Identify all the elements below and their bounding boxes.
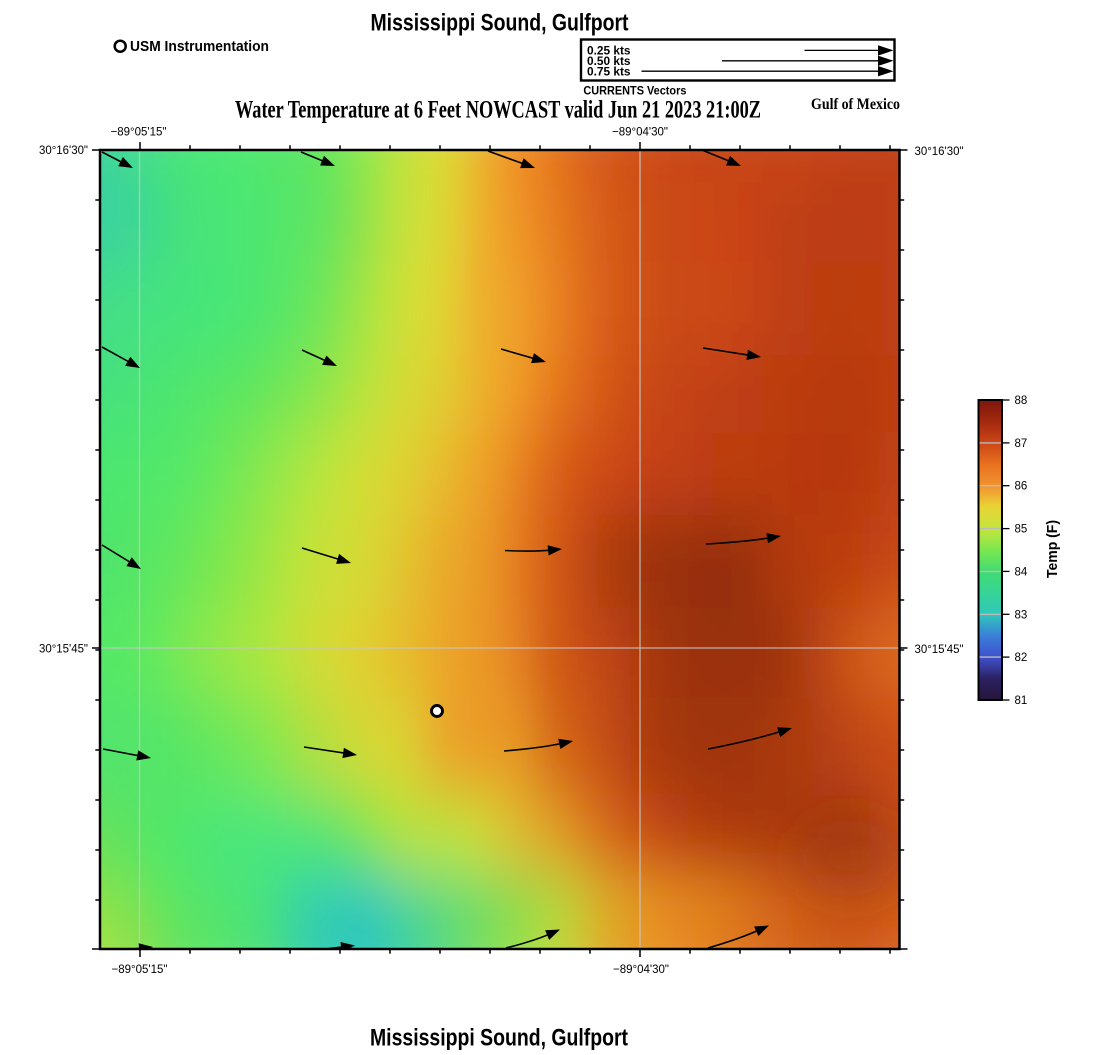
svg-text:30°16'30": 30°16'30" — [915, 144, 964, 158]
svg-text:84: 84 — [1015, 566, 1028, 578]
svg-text:Temp (F): Temp (F) — [1045, 520, 1061, 578]
svg-text:82: 82 — [1015, 652, 1028, 664]
svg-text:81: 81 — [1015, 695, 1028, 707]
svg-text:83: 83 — [1015, 609, 1028, 621]
svg-text:−89°04'30": −89°04'30" — [612, 125, 668, 139]
svg-text:30°15'45": 30°15'45" — [39, 642, 88, 656]
svg-text:Mississippi Sound, Gulfport: Mississippi Sound, Gulfport — [371, 10, 629, 37]
svg-text:88: 88 — [1015, 395, 1028, 407]
svg-text:86: 86 — [1015, 481, 1028, 493]
svg-text:−89°05'15": −89°05'15" — [112, 962, 168, 976]
svg-text:USM Instrumentation: USM Instrumentation — [130, 38, 269, 55]
svg-text:87: 87 — [1015, 438, 1028, 450]
svg-text:Water Temperature at 6 Feet NO: Water Temperature at 6 Feet NOWCAST vali… — [235, 97, 761, 124]
svg-text:Gulf of Mexico: Gulf of Mexico — [811, 96, 900, 113]
svg-text:30°16'30": 30°16'30" — [39, 143, 88, 157]
svg-text:30°15'45": 30°15'45" — [915, 642, 964, 656]
svg-text:−89°05'15": −89°05'15" — [111, 125, 167, 139]
svg-text:−89°04'30": −89°04'30" — [613, 962, 669, 976]
svg-text:Mississippi Sound, Gulfport: Mississippi Sound, Gulfport — [370, 1025, 628, 1050]
svg-text:0.75 kts: 0.75 kts — [587, 67, 631, 79]
svg-text:85: 85 — [1015, 524, 1028, 536]
